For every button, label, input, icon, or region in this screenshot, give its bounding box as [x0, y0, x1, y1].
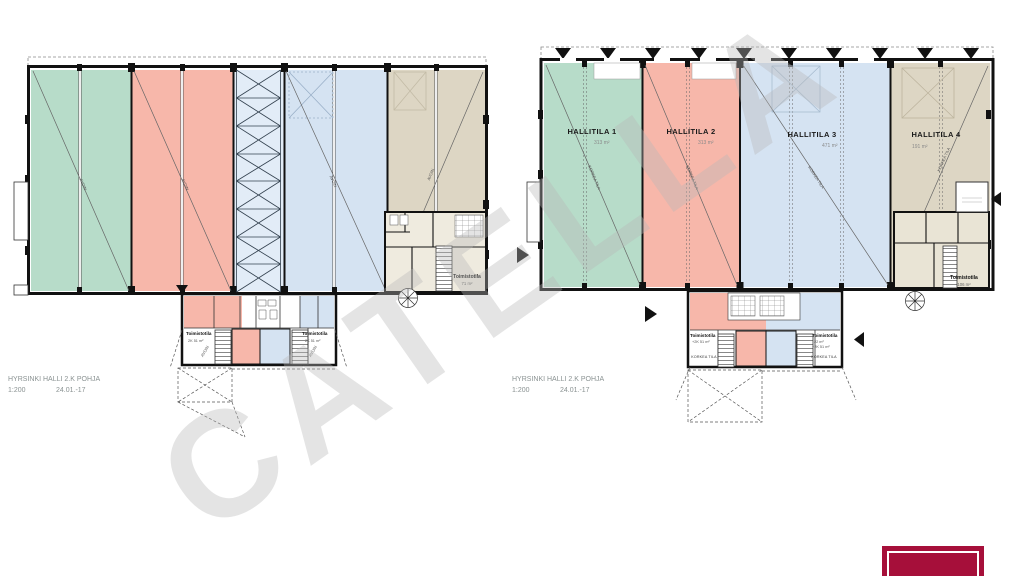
mezzanine-notch	[594, 63, 640, 79]
staircase	[718, 334, 734, 367]
ext-room-pink	[736, 331, 766, 366]
ext-room-pink	[232, 329, 260, 364]
drawing-title: HYRSINKI HALLI 2.K POHJA	[512, 374, 604, 385]
high-space-note: KORKEA TILA	[811, 355, 837, 359]
entry-arrow-icon	[854, 332, 864, 347]
floor-plan-sheet: AVOIN AVOIN AVOIN AVOIN Toimistotila 71 …	[0, 0, 1024, 576]
extension-left-plan: Toimistotila 2K 51 m² AVOIN Toimistotila…	[182, 294, 336, 365]
wc-fixture	[400, 215, 408, 225]
title-block-right: HYRSINKI HALLI 2.K POHJA 1:200 24.01.-17	[512, 374, 604, 396]
meeting-tables	[455, 215, 483, 237]
drawing-scale: 1:200	[512, 385, 560, 396]
drawing-date: 24.01.-17	[56, 385, 86, 396]
staircase	[436, 246, 452, 291]
staircase	[797, 334, 813, 367]
plans-drawing: AVOIN AVOIN AVOIN AVOIN Toimistotila 71 …	[0, 0, 1024, 576]
meeting-tables	[760, 296, 784, 316]
entry-arrow-icon	[645, 306, 657, 322]
staircase	[215, 330, 231, 364]
catella-logo-inner-border	[887, 551, 979, 576]
office-label: Toimistotila	[302, 331, 328, 336]
office-area: 2K 51 m²	[305, 339, 321, 343]
mezzanine-notch	[692, 63, 736, 79]
canopy-right-plan	[676, 367, 856, 422]
office-area: 2K 51 m²	[188, 339, 204, 343]
office-area: 22 m²	[814, 340, 824, 344]
side-room	[956, 182, 988, 212]
drawing-date: 24.01.-17	[560, 385, 590, 396]
office-area: +2K 51 m²	[692, 340, 710, 344]
roof-drain-markers	[555, 48, 979, 59]
wall-recess	[527, 182, 540, 242]
hall-area: 313 m²	[698, 140, 714, 146]
office-label: Toimistotila	[186, 331, 212, 336]
entry-arrow-icon	[517, 247, 529, 263]
staircase	[943, 246, 957, 288]
eaves-strip	[28, 57, 486, 66]
spiral-stair	[399, 289, 418, 308]
hall-name: HALLITILA 1	[567, 127, 616, 136]
catella-logo	[882, 546, 984, 576]
hall-name: HALLITILA 4	[911, 130, 961, 139]
ext-room-blue	[766, 331, 796, 366]
extension-right-plan: Toimistotila +2K 51 m² KORKEA TILA Toimi…	[688, 291, 842, 367]
wc-fixture	[390, 215, 398, 225]
hall-area: 191 m²	[912, 144, 928, 150]
office-area: 106 m²	[957, 282, 971, 287]
ext-room-blue	[260, 329, 290, 364]
office-block-right-plan: Toimistotila 106 m²	[894, 212, 989, 311]
ext-room-pink-band	[184, 296, 242, 328]
drawing-scale: 1:200	[8, 385, 56, 396]
hall-area: 313 m²	[594, 140, 610, 146]
office-label: Toimistotila	[690, 333, 716, 338]
ext-room-blue-band	[300, 296, 334, 328]
office-area: +2K 51 m²	[812, 345, 830, 349]
zone-truss	[234, 70, 284, 291]
wall-recess	[14, 285, 28, 295]
hall-name: HALLITILA 2	[666, 127, 715, 136]
hall-area: 471 m²	[822, 143, 838, 149]
title-block-left: HYRSINKI HALLI 2.K POHJA 1:200 24.01.-17	[8, 374, 100, 396]
hall-name: HALLITILA 3	[787, 130, 836, 139]
wall-recess	[14, 182, 28, 240]
office-label: Toimistotila	[453, 274, 481, 280]
office-label: Toimistotila	[812, 333, 838, 338]
spiral-stair	[906, 292, 925, 311]
meeting-tables	[731, 296, 755, 316]
office-label: Toimistotila	[950, 275, 978, 281]
drawing-title: HYRSINKI HALLI 2.K POHJA	[8, 374, 100, 385]
floor-plan-right: KORKEA TILA KORKEA TILA KORKEA TILA KORK…	[527, 47, 1001, 422]
high-space-note: KORKEA TILA	[691, 355, 717, 359]
office-area: 71 m²	[462, 281, 474, 286]
